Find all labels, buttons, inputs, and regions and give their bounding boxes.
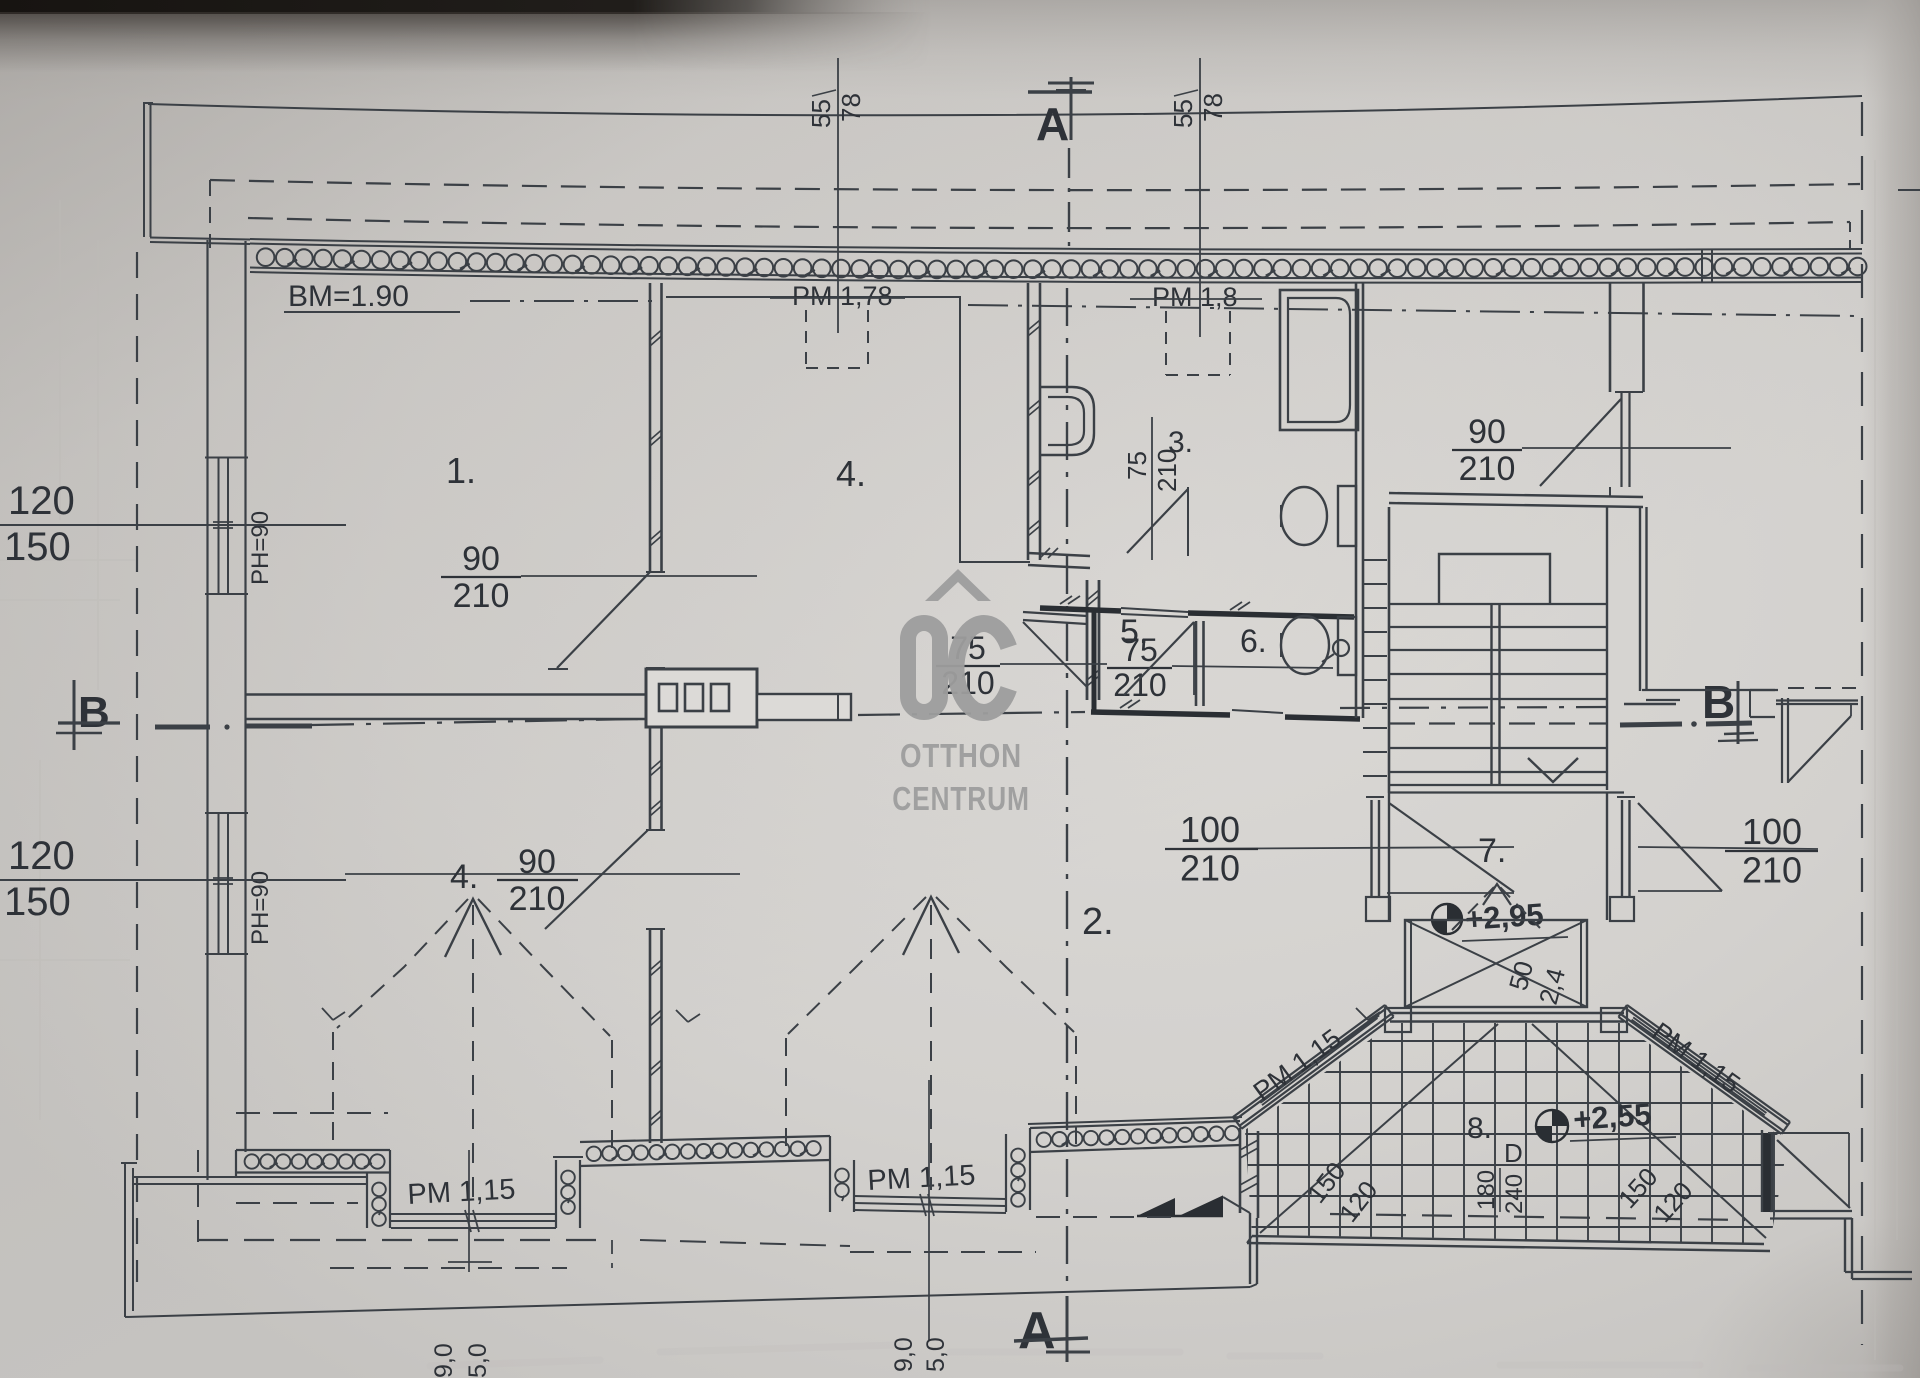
svg-text:OTTHON: OTTHON [900, 738, 1022, 775]
svg-text:90: 90 [462, 540, 500, 578]
svg-text:3.: 3. [1168, 426, 1193, 459]
svg-text:+2,95: +2,95 [1464, 897, 1545, 937]
svg-text:5,0: 5,0 [922, 1337, 950, 1372]
svg-text:5,0: 5,0 [464, 1343, 492, 1378]
svg-text:PM 1,15: PM 1,15 [867, 1159, 977, 1197]
svg-text:55: 55 [806, 99, 836, 128]
svg-text:+2,55: +2,55 [1572, 1097, 1653, 1137]
svg-text:210: 210 [1742, 850, 1802, 891]
svg-text:PH=90: PH=90 [247, 871, 274, 945]
svg-text:D: D [1504, 1138, 1523, 1168]
svg-text:240: 240 [1501, 1174, 1528, 1214]
svg-text:PM 1,15: PM 1,15 [407, 1173, 517, 1211]
svg-text:6.: 6. [1240, 623, 1267, 659]
svg-text:2.: 2. [1082, 901, 1114, 943]
svg-text:9,0: 9,0 [430, 1343, 458, 1378]
svg-text:B: B [78, 688, 110, 737]
svg-text:A: A [1036, 98, 1069, 150]
svg-text:B: B [1702, 676, 1735, 728]
svg-text:75: 75 [1122, 451, 1152, 480]
svg-text:210: 210 [1113, 667, 1166, 703]
svg-text:150: 150 [4, 525, 71, 569]
svg-text:4.: 4. [450, 858, 478, 896]
svg-text:PM 1,8: PM 1,8 [1152, 282, 1238, 312]
svg-text:210: 210 [1180, 848, 1240, 889]
svg-text:100: 100 [1742, 811, 1802, 852]
svg-text:210: 210 [509, 880, 566, 918]
svg-text:210: 210 [1459, 450, 1516, 488]
svg-text:120: 120 [8, 479, 75, 523]
svg-text:8.: 8. [1467, 1112, 1492, 1145]
svg-text:4.: 4. [836, 453, 866, 494]
svg-text:90: 90 [1468, 413, 1506, 451]
svg-text:150: 150 [4, 880, 71, 924]
svg-text:75: 75 [1122, 632, 1158, 668]
svg-text:120: 120 [8, 834, 75, 878]
svg-text:CENTRUM: CENTRUM [892, 781, 1030, 817]
svg-text:210: 210 [453, 577, 510, 615]
svg-text:90: 90 [518, 843, 556, 881]
svg-text:78: 78 [836, 93, 866, 122]
svg-text:PM 1,78: PM 1,78 [792, 281, 893, 311]
svg-text:100: 100 [1180, 809, 1240, 850]
svg-text:9,0: 9,0 [890, 1337, 918, 1372]
svg-text:PH=90: PH=90 [247, 511, 274, 585]
svg-text:55: 55 [1168, 99, 1198, 128]
svg-text:1.: 1. [446, 450, 476, 491]
svg-text:78: 78 [1198, 93, 1228, 122]
svg-text:7.: 7. [1478, 832, 1506, 870]
svg-text:BM=1.90: BM=1.90 [288, 280, 409, 313]
svg-text:180: 180 [1473, 1170, 1500, 1210]
